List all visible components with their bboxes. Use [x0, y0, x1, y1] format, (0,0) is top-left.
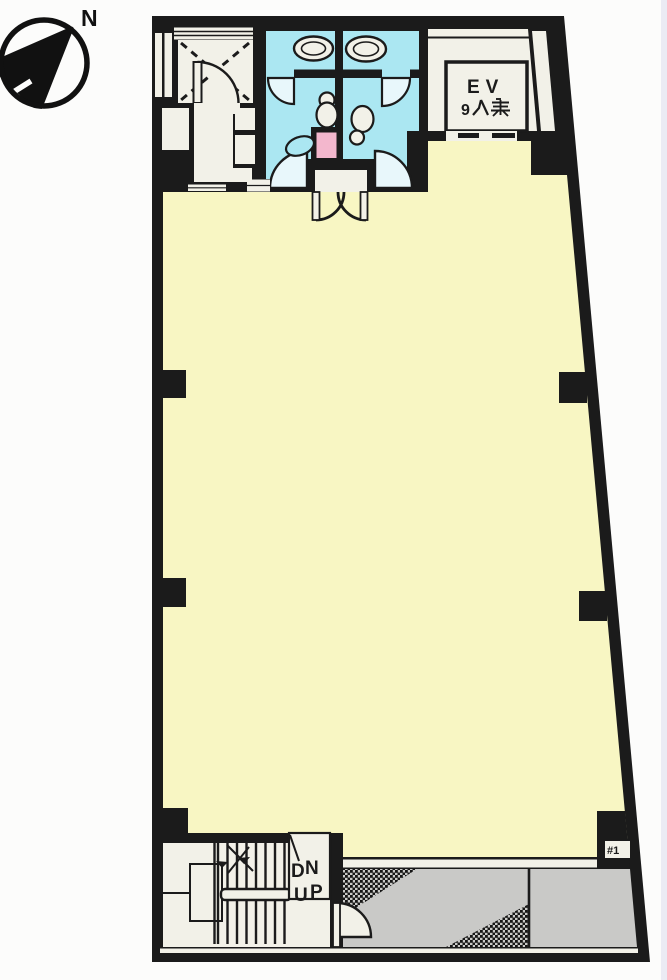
- svg-text:EV: EV: [467, 77, 504, 98]
- svg-text:D: D: [291, 861, 305, 882]
- svg-text:9: 9: [461, 102, 470, 119]
- svg-text:N: N: [305, 858, 319, 879]
- svg-text:P: P: [310, 882, 323, 903]
- svg-text:U: U: [294, 885, 308, 906]
- svg-text:#1: #1: [607, 845, 619, 857]
- svg-text:N: N: [81, 5, 98, 31]
